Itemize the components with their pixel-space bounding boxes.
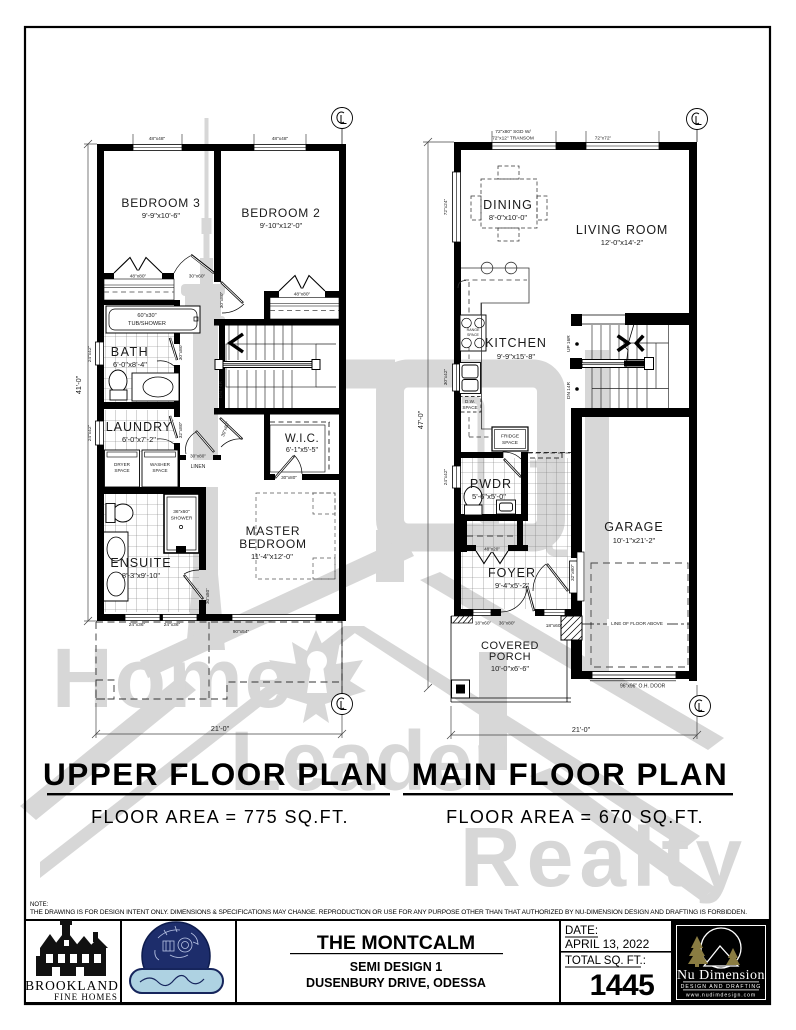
svg-text:30"x80": 30"x80" — [219, 291, 225, 308]
svg-text:W.I.C.: W.I.C. — [285, 433, 319, 445]
svg-text:UPPER FLOOR PLAN: UPPER FLOOR PLAN — [43, 756, 389, 792]
svg-text:48"x80": 48"x80" — [294, 292, 311, 298]
svg-text:21'-0": 21'-0" — [572, 725, 591, 734]
svg-text:NOTE:: NOTE: — [30, 902, 49, 908]
svg-text:90"x54": 90"x54" — [233, 629, 250, 635]
svg-text:72"x80" SGD W/: 72"x80" SGD W/ — [495, 129, 531, 135]
svg-text:8'-3"x9'-10": 8'-3"x9'-10" — [122, 571, 161, 580]
svg-text:Home: Home — [52, 631, 293, 725]
svg-text:FRIDGE: FRIDGE — [501, 434, 519, 440]
svg-text:PWDR: PWDR — [470, 477, 512, 491]
svg-text:BROOKLAND: BROOKLAND — [25, 978, 119, 993]
svg-text:48"x48": 48"x48" — [272, 136, 289, 142]
svg-text:WASHER: WASHER — [150, 462, 171, 467]
svg-text:10'-1"x21'-2": 10'-1"x21'-2" — [613, 536, 656, 545]
svg-text:6'-1"x5'-5": 6'-1"x5'-5" — [286, 445, 319, 454]
svg-text:30"x80": 30"x80" — [178, 343, 184, 360]
svg-text:DRYER: DRYER — [114, 462, 131, 467]
svg-text:21'-0": 21'-0" — [211, 724, 230, 733]
svg-text:9'-10"x12'-0": 9'-10"x12'-0" — [260, 221, 303, 230]
svg-text:8'-0"x10'-0": 8'-0"x10'-0" — [489, 213, 528, 222]
svg-text:UP 16R: UP 16R — [566, 335, 572, 352]
svg-text:Nu Dimension: Nu Dimension — [677, 968, 765, 983]
svg-text:6'-0"x8'-4": 6'-0"x8'-4" — [113, 360, 147, 369]
svg-text:30"x60": 30"x60" — [189, 274, 206, 280]
svg-text:32"x80": 32"x80" — [570, 564, 576, 581]
svg-text:SPACE: SPACE — [467, 333, 480, 337]
svg-text:THE MONTCALM: THE MONTCALM — [317, 932, 475, 954]
svg-text:30"x80": 30"x80" — [190, 454, 206, 459]
svg-text:47'-0": 47'-0" — [416, 410, 425, 429]
svg-text:BEDROOM: BEDROOM — [239, 537, 307, 551]
svg-text:FLOOR AREA = 775 SQ.FT.: FLOOR AREA = 775 SQ.FT. — [91, 807, 349, 827]
svg-text:DN 14R: DN 14R — [566, 381, 572, 399]
svg-text:DATE:: DATE: — [565, 925, 598, 937]
svg-text:36"x80": 36"x80" — [499, 621, 516, 627]
svg-text:41'-0": 41'-0" — [74, 375, 83, 394]
svg-text:GARAGE: GARAGE — [604, 520, 664, 534]
svg-text:LAUNDRY: LAUNDRY — [106, 420, 173, 434]
svg-text:18"x60": 18"x60" — [475, 621, 492, 627]
svg-text:SHOWER: SHOWER — [171, 516, 193, 522]
svg-text:SPACE: SPACE — [114, 468, 129, 473]
svg-text:48"x80": 48"x80" — [130, 274, 147, 280]
svg-text:48"x48": 48"x48" — [149, 136, 166, 142]
svg-text:BEDROOM 2: BEDROOM 2 — [241, 206, 320, 220]
svg-text:72"x12" TRANSOM: 72"x12" TRANSOM — [492, 136, 534, 142]
svg-text:ENSUITE: ENSUITE — [110, 556, 171, 570]
svg-text:30"x80": 30"x80" — [281, 475, 297, 480]
svg-text:D.W.: D.W. — [465, 399, 475, 404]
svg-text:LINEN: LINEN — [191, 464, 206, 470]
svg-text:1445: 1445 — [590, 969, 655, 1002]
svg-text:30"x80": 30"x80" — [205, 588, 210, 604]
svg-text:9'-4"x5'-2": 9'-4"x5'-2" — [495, 581, 529, 590]
svg-text:18"x60": 18"x60" — [546, 623, 563, 629]
svg-text:11'-4"x12'-0": 11'-4"x12'-0" — [251, 552, 293, 561]
svg-text:FLOOR AREA = 670 SQ.FT.: FLOOR AREA = 670 SQ.FT. — [446, 807, 704, 827]
svg-text:LINE OF FLOOR ABOVE: LINE OF FLOOR ABOVE — [611, 621, 663, 626]
svg-text:72"x24": 72"x24" — [443, 198, 449, 215]
svg-text:12'-0"x14'-2": 12'-0"x14'-2" — [601, 238, 644, 247]
svg-text:APRIL 13, 2022: APRIL 13, 2022 — [565, 937, 650, 951]
svg-text:24"x42": 24"x42" — [443, 468, 449, 485]
svg-text:60"x30": 60"x30" — [137, 313, 156, 319]
svg-text:30"x42": 30"x42" — [443, 368, 449, 385]
svg-text:SPACE: SPACE — [462, 405, 477, 410]
svg-text:96"x96" O.H. DOOR: 96"x96" O.H. DOOR — [620, 684, 666, 690]
svg-text:48"x20": 48"x20" — [484, 547, 500, 552]
svg-text:PORCH: PORCH — [489, 651, 531, 663]
svg-text:36"x60": 36"x60" — [173, 509, 190, 515]
svg-text:LIVING ROOM: LIVING ROOM — [576, 223, 668, 237]
svg-text:THE DRAWING IS FOR DESIGN INTE: THE DRAWING IS FOR DESIGN INTENT ONLY. D… — [30, 909, 747, 916]
svg-text:32"x80": 32"x80" — [178, 421, 184, 438]
svg-text:TUB/SHOWER: TUB/SHOWER — [128, 321, 166, 327]
svg-text:9'-9"x15'-8": 9'-9"x15'-8" — [497, 352, 536, 361]
svg-text:6'-0"x7'-2": 6'-0"x7'-2" — [122, 435, 156, 444]
svg-text:SPACE: SPACE — [502, 440, 518, 446]
svg-text:72"x72": 72"x72" — [595, 136, 612, 142]
svg-text:10'-0"x6'-6": 10'-0"x6'-6" — [491, 664, 530, 673]
svg-text:FINE HOMES: FINE HOMES — [54, 992, 118, 1002]
svg-text:5'-6"x5'-0": 5'-6"x5'-0" — [472, 492, 506, 501]
svg-text:TOTAL SQ. FT.:: TOTAL SQ. FT.: — [565, 955, 646, 967]
svg-text:DINING: DINING — [483, 198, 533, 212]
svg-text:KITCHEN: KITCHEN — [485, 336, 547, 350]
svg-text:MASTER: MASTER — [246, 524, 301, 538]
svg-text:9'-9"x10'-6": 9'-9"x10'-6" — [142, 211, 181, 220]
svg-text:24"x36": 24"x36" — [164, 622, 181, 628]
svg-text:SPACE: SPACE — [152, 468, 167, 473]
svg-text:DESIGN AND DRAFTING: DESIGN AND DRAFTING — [681, 984, 762, 990]
svg-text:MAIN FLOOR PLAN: MAIN FLOOR PLAN — [412, 756, 728, 792]
svg-text:DUSENBURY DRIVE, ODESSA: DUSENBURY DRIVE, ODESSA — [306, 976, 486, 990]
svg-text:FOYER: FOYER — [488, 566, 536, 580]
svg-text:SEMI DESIGN 1: SEMI DESIGN 1 — [350, 960, 442, 974]
svg-text:BEDROOM 3: BEDROOM 3 — [121, 196, 200, 210]
svg-text:24"x36": 24"x36" — [129, 622, 146, 628]
svg-text:RANGE: RANGE — [467, 328, 480, 332]
svg-text:www.nudimdesign.com: www.nudimdesign.com — [686, 993, 756, 999]
svg-text:BATH: BATH — [111, 345, 149, 359]
